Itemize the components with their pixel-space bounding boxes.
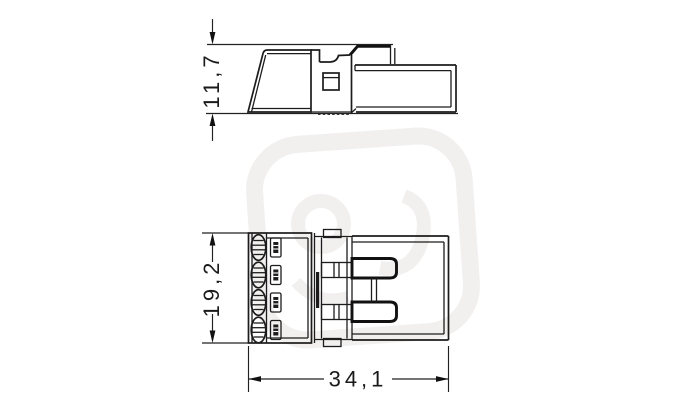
dimension-front-height: 19,2: [199, 233, 249, 343]
side-view: 11,7: [199, 19, 458, 141]
arrowhead-up-icon: [210, 233, 216, 246]
center-rib: [316, 272, 319, 308]
side-test-window: [323, 73, 339, 90]
dimension-side-height: 11,7: [199, 19, 458, 141]
side-height-label: 11,7: [199, 51, 224, 108]
side-latch-lever: [350, 46, 395, 65]
side-socket-body: [352, 65, 457, 113]
clamp-opening-4: [251, 317, 266, 343]
latch-arm-bottom: [322, 302, 397, 322]
connector-dimension-drawing: 11,7: [0, 0, 697, 413]
arrowhead-left-icon: [249, 376, 262, 382]
arrowhead-down-icon: [210, 32, 216, 45]
front-width-label: 34,1: [329, 367, 388, 392]
test-slot-2: [271, 266, 282, 285]
arrowhead-up-icon: [210, 114, 216, 127]
side-middle-block: [311, 50, 352, 114]
dimension-front-width: 34,1: [249, 346, 449, 392]
front-height-label: 19,2: [199, 259, 224, 318]
test-slot-1: [271, 238, 282, 257]
arrowhead-right-icon: [436, 376, 449, 382]
technical-drawing-page: 11,7: [0, 0, 697, 413]
side-wedge-housing: [248, 50, 311, 112]
arrowhead-down-icon: [210, 331, 216, 344]
